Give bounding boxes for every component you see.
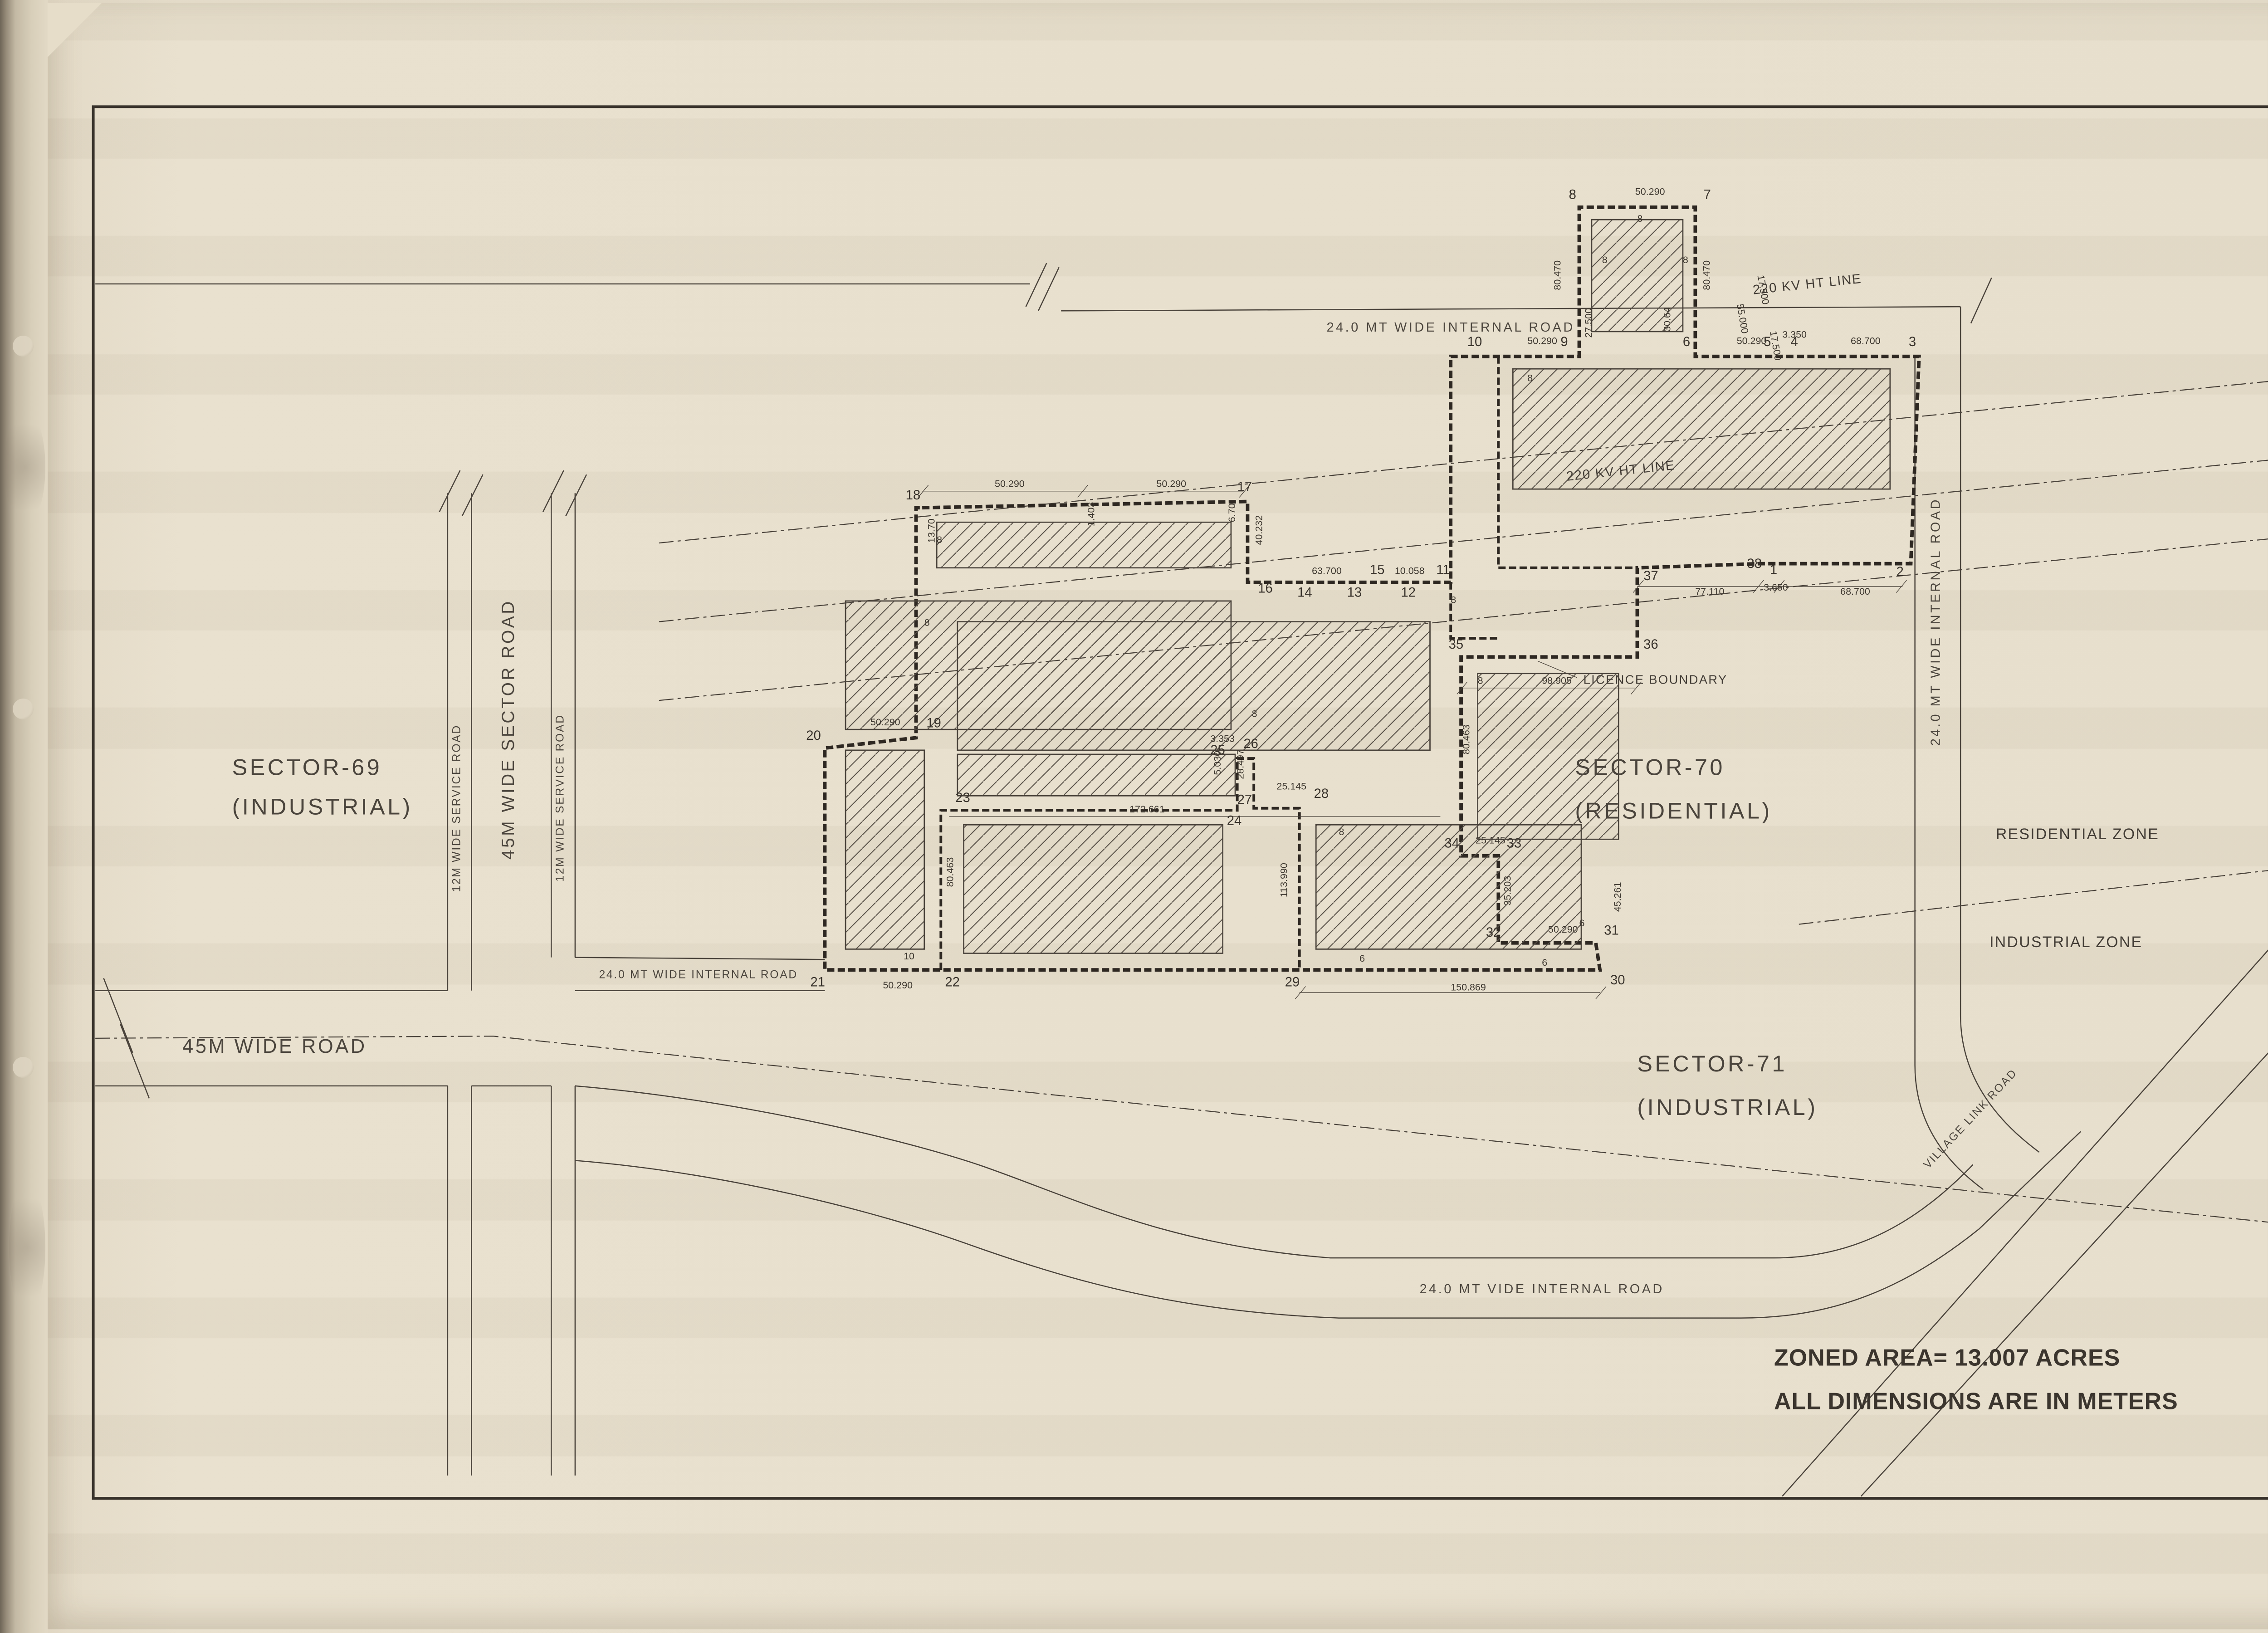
dimension-label: 77.110 [1695,586,1724,597]
dimension-label: 6 [1579,918,1584,929]
vertex-number: 38 [1747,557,1762,571]
dimension-label: 8 [1527,373,1533,384]
zoning-plan-drawing: SECTOR-69 (INDUSTRIAL) SECTOR-70 (RESIDE… [0,0,2268,1633]
dimension-label: 50.290 [1548,924,1578,935]
vertex-number: 29 [1285,975,1300,990]
dimension-label: 10.058 [1395,565,1425,576]
licence-boundary-label: LICENCE BOUNDARY [1584,673,1728,687]
dimension-label: 35.203 [1502,876,1513,906]
dimension-label: 68.700 [1840,586,1870,597]
dimension-label: 50.290 [1156,479,1186,489]
industrial-zone-label: INDUSTRIAL ZONE [1989,934,2142,951]
road-12m-west-label: 12M WIDE SERVICE ROAD [450,724,463,892]
vertex-number: 34 [1445,836,1460,851]
sector-71-label: SECTOR-71 [1637,1051,1787,1076]
dimension-label: 50.290 [1527,335,1557,346]
road-12m-east-label: 12M WIDE SERVICE ROAD [554,714,567,881]
dimension-label: 45.261 [1612,882,1623,912]
vertex-number: 33 [1507,836,1522,851]
dimension-label: 40.232 [1253,515,1264,545]
vertex-number: 32 [1486,925,1501,940]
dimension-label: 6 [1359,953,1365,964]
vertex-number: 26 [1243,737,1258,751]
vertex-number: 13 [1347,586,1362,600]
vertex-number: 16 [1258,582,1273,596]
dimension-label: 8 [1252,709,1257,719]
vertex-number: 2 [1897,565,1904,579]
sector-69-sub: (INDUSTRIAL) [232,794,413,819]
vertex-number: 19 [926,716,941,731]
sector-69-label: SECTOR-69 [232,755,382,780]
zoned-area-line1: ZONED AREA= 13.007 ACRES [1774,1345,2120,1371]
sheet-border [93,107,2268,1498]
dimension-label: 8 [1683,254,1688,265]
internal-road-top-label: 24.0 MT WIDE INTERNAL ROAD [1327,320,1575,335]
dimension-label: 10 [904,951,914,962]
dimension-label: 8 [1451,594,1456,605]
vertex-number: 22 [945,975,960,990]
dimension-label: 50.290 [1635,186,1665,197]
sector-70-label: SECTOR-70 [1575,755,1725,780]
dimension-label: 63.700 [1312,565,1342,576]
dimension-label: 6 [1542,957,1547,968]
dimension-label: 25.145 [1476,835,1505,846]
dimension-label: 113.990 [1278,863,1289,897]
dimension-label: 8 [1602,254,1608,265]
residential-zone-label: RESIDENTIAL ZONE [1996,826,2159,843]
vertex-number: 9 [1560,335,1568,349]
vertex-number: 37 [1643,569,1658,583]
dimension-label: 13.70 [926,518,937,543]
dimension-label: 80.470 [1552,260,1563,290]
vertex-number: 7 [1704,188,1711,202]
internal-road-right-label: 24.0 MT WIDE INTERNAL ROAD [1928,498,1943,746]
road-45m-label: 45M WIDE ROAD [182,1036,367,1057]
dimension-label: 80.463 [1461,724,1471,754]
vertex-number: 15 [1370,562,1385,577]
dimension-label: 80.463 [945,857,956,887]
dimension-label: 50.290 [883,980,913,991]
dimension-label: 50.290 [1737,335,1767,346]
internal-road-bottom-label: 24.0 MT VIDE INTERNAL ROAD [1420,1282,1664,1296]
vertex-number: 14 [1297,586,1312,600]
vertex-number: 27 [1237,793,1252,807]
vertex-number: 25 [1210,743,1225,758]
vertex-number: 35 [1449,637,1464,652]
dimension-label: 8 [1339,826,1344,837]
dimension-label: 68.700 [1851,335,1881,346]
scanned-zoning-plan-sheet: { "title_block": { "title": "REVISED ZON… [0,0,2268,1633]
dimension-label: 50.290 [995,479,1025,489]
dimension-label: 17.500 [1755,274,1771,305]
dimension-label: 3.650 [1764,582,1788,593]
village-link-road-label: VILLAGE LINK ROAD [1921,1067,2020,1171]
dimension-label: 28.497 [1235,749,1246,779]
dimension-label: 8 [937,534,942,545]
dimension-label: 172.661 [1129,804,1165,815]
dimension-label: 98.905 [1542,675,1572,686]
vertex-number: 18 [906,488,921,503]
vertex-number: 4 [1791,335,1798,349]
dimension-label: 150.869 [1451,982,1486,993]
vertex-number: 3 [1909,335,1916,349]
dimension-label: 50.290 [870,717,900,728]
dimension-label: 6.70 [1227,503,1237,522]
vertex-number: 1 [1770,562,1777,577]
dimension-label: 8 [1637,213,1642,224]
vertex-number: 5 [1764,335,1771,349]
dimension-label: 30.64 [1662,307,1673,332]
vertex-number: 11 [1436,562,1450,577]
vertex-number: 12 [1401,586,1416,600]
dimension-label: 8 [924,617,930,628]
dimension-label: 25.145 [1276,781,1306,792]
dimension-label: 27.500 [1583,308,1594,338]
road-45m-sector-label: 45M WIDE SECTOR ROAD [499,599,518,860]
vertex-number: 28 [1314,787,1329,801]
vertex-number: 20 [806,728,821,743]
dimension-label: 1.403 [1085,502,1096,527]
vertex-number: 23 [955,791,970,805]
vertex-number: 8 [1569,188,1576,202]
vertex-number: 21 [810,975,825,990]
internal-road-left-label: 24.0 MT WIDE INTERNAL ROAD [599,968,797,981]
sector-70-sub: (RESIDENTIAL) [1575,798,1772,824]
vertex-number: 30 [1610,973,1625,988]
dimension-label: 80.470 [1701,260,1712,290]
vertex-number: 24 [1227,813,1242,828]
vertex-number: 6 [1683,335,1690,349]
vertex-number: 36 [1643,637,1658,652]
vertex-number: 31 [1604,923,1619,938]
sector-71-sub: (INDUSTRIAL) [1637,1095,1818,1120]
dimension-label: 8 [1478,675,1483,686]
zoned-area-line2: ALL DIMENSIONS ARE IN METERS [1774,1389,2178,1415]
vertex-number: 17 [1237,480,1252,494]
vertex-number: 10 [1467,335,1482,349]
